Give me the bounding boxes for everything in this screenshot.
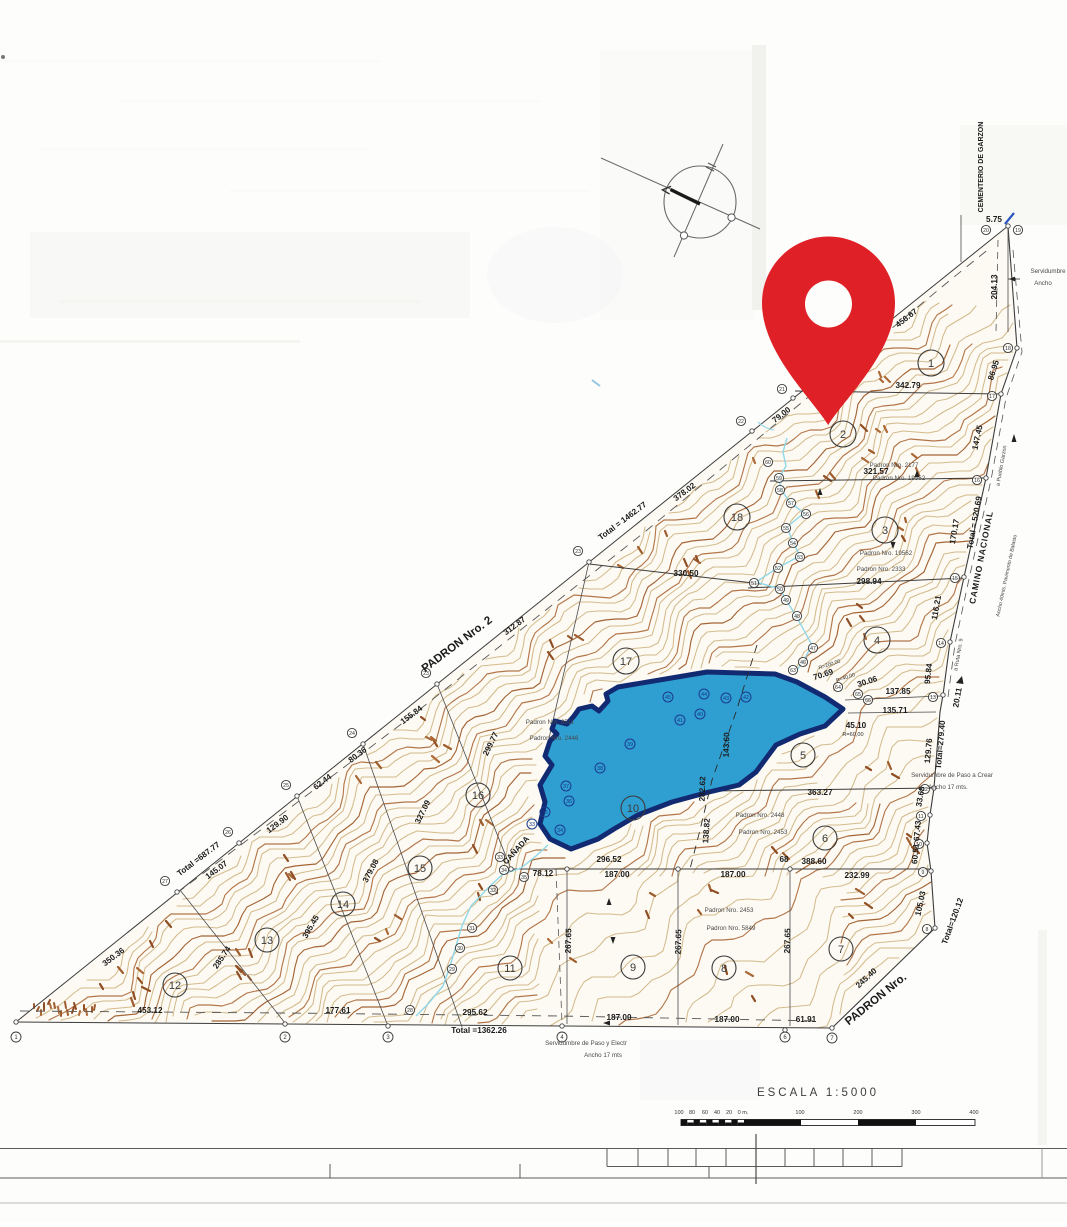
- svg-text:Servidumbre de Paso a Crear: Servidumbre de Paso a Crear: [911, 772, 993, 779]
- svg-text:100: 100: [795, 1110, 804, 1116]
- svg-text:Padron Nro. 2453: Padron Nro. 2453: [705, 907, 754, 914]
- svg-text:Padron Nro. 2453: Padron Nro. 2453: [739, 829, 788, 836]
- svg-text:16: 16: [472, 790, 484, 802]
- svg-text:33: 33: [529, 822, 535, 828]
- svg-text:31: 31: [469, 926, 475, 932]
- svg-text:282.62: 282.62: [698, 776, 708, 802]
- svg-text:298.94: 298.94: [856, 577, 881, 586]
- svg-text:ESCALA 1:5000: ESCALA 1:5000: [757, 1087, 879, 1099]
- svg-text:330.50: 330.50: [673, 569, 698, 578]
- svg-text:60: 60: [765, 460, 771, 466]
- svg-text:65: 65: [855, 692, 861, 698]
- svg-text:40: 40: [697, 712, 703, 718]
- svg-text:18: 18: [1005, 346, 1011, 352]
- svg-text:267.65: 267.65: [674, 929, 684, 955]
- svg-text:177.61: 177.61: [325, 1006, 350, 1015]
- svg-text:28: 28: [407, 1008, 413, 1014]
- svg-text:Padron Nro. 2333: Padron Nro. 2333: [857, 566, 906, 573]
- svg-text:35: 35: [521, 875, 527, 881]
- svg-text:52: 52: [775, 566, 781, 572]
- svg-text:Padron Nro. 2448: Padron Nro. 2448: [736, 812, 785, 819]
- svg-text:400: 400: [969, 1110, 978, 1116]
- svg-text:41: 41: [677, 718, 683, 724]
- svg-text:25: 25: [283, 783, 289, 789]
- svg-text:27: 27: [162, 879, 168, 885]
- svg-text:200: 200: [853, 1110, 862, 1116]
- svg-text:37: 37: [563, 784, 569, 790]
- svg-text:34: 34: [501, 868, 507, 874]
- svg-text:300: 300: [911, 1110, 920, 1116]
- svg-text:59: 59: [776, 476, 782, 482]
- svg-text:10: 10: [627, 803, 639, 815]
- svg-text:49: 49: [783, 598, 789, 604]
- svg-text:42: 42: [743, 695, 749, 701]
- svg-text:232.99: 232.99: [844, 871, 869, 880]
- svg-text:453.12: 453.12: [137, 1006, 162, 1015]
- svg-text:7: 7: [838, 944, 844, 956]
- svg-text:17: 17: [620, 656, 632, 668]
- svg-text:30: 30: [457, 946, 463, 952]
- svg-text:40: 40: [714, 1110, 720, 1116]
- svg-text:61.91: 61.91: [796, 1015, 817, 1024]
- svg-text:187.00: 187.00: [604, 870, 629, 879]
- svg-text:Ancho: Ancho: [1034, 280, 1052, 287]
- svg-text:32: 32: [490, 888, 496, 894]
- svg-text:Padron Nro. 8511: Padron Nro. 8511: [526, 719, 575, 726]
- svg-text:187.00: 187.00: [714, 1015, 739, 1024]
- svg-text:45.10: 45.10: [846, 721, 867, 730]
- svg-text:21: 21: [779, 387, 785, 393]
- svg-text:16: 16: [974, 478, 980, 484]
- svg-text:60: 60: [702, 1110, 708, 1116]
- svg-text:CEMENTERIO DE GARZON: CEMENTERIO DE GARZON: [978, 122, 985, 213]
- svg-text:20: 20: [726, 1110, 732, 1116]
- svg-text:29: 29: [449, 967, 455, 973]
- svg-text:46: 46: [800, 660, 806, 666]
- svg-text:19: 19: [1015, 228, 1021, 234]
- svg-text:8: 8: [926, 927, 929, 933]
- svg-text:296.52: 296.52: [596, 855, 621, 864]
- svg-text:187.00: 187.00: [720, 870, 745, 879]
- svg-text:6: 6: [822, 833, 828, 845]
- svg-text:58: 58: [777, 488, 783, 494]
- svg-text:26: 26: [225, 830, 231, 836]
- svg-text:11: 11: [504, 963, 515, 975]
- svg-text:295.62: 295.62: [462, 1008, 487, 1017]
- svg-text:Ancho 17 mts: Ancho 17 mts: [584, 1052, 622, 1059]
- svg-text:13: 13: [930, 695, 936, 701]
- svg-text:5.75: 5.75: [986, 215, 1002, 224]
- svg-text:20: 20: [983, 228, 989, 234]
- svg-text:388.60: 388.60: [801, 857, 826, 866]
- svg-text:53: 53: [797, 555, 803, 561]
- svg-text:80: 80: [689, 1110, 695, 1116]
- svg-text:4: 4: [874, 635, 880, 647]
- svg-text:143.60: 143.60: [722, 732, 732, 758]
- svg-text:23: 23: [575, 549, 581, 555]
- svg-text:187.00: 187.00: [606, 1013, 631, 1022]
- svg-text:14: 14: [337, 899, 349, 911]
- svg-text:24: 24: [349, 731, 355, 737]
- svg-text:8: 8: [721, 963, 727, 975]
- svg-text:63: 63: [790, 668, 796, 674]
- svg-text:204.13: 204.13: [990, 274, 999, 299]
- svg-text:9: 9: [922, 870, 925, 876]
- svg-text:11: 11: [918, 814, 923, 820]
- svg-text:9: 9: [630, 962, 636, 974]
- svg-text:60.51: 60.51: [910, 843, 921, 865]
- svg-text:43: 43: [723, 696, 729, 702]
- svg-text:Padron Nro. 19562: Padron Nro. 19562: [860, 550, 913, 557]
- svg-text:39: 39: [627, 742, 633, 748]
- svg-text:12: 12: [169, 980, 181, 992]
- svg-text:267.65: 267.65: [783, 928, 793, 954]
- svg-text:36: 36: [566, 799, 572, 805]
- svg-text:Padron Nro. 2446: Padron Nro. 2446: [530, 735, 579, 742]
- svg-text:15: 15: [952, 576, 958, 582]
- svg-text:14: 14: [938, 641, 944, 647]
- svg-text:R=60,00: R=60,00: [842, 732, 863, 738]
- svg-text:100: 100: [674, 1110, 683, 1116]
- svg-text:68: 68: [779, 855, 789, 864]
- svg-text:78.12: 78.12: [533, 869, 554, 878]
- svg-text:64: 64: [835, 685, 841, 691]
- svg-text:3: 3: [882, 525, 888, 537]
- svg-text:1: 1: [928, 358, 934, 370]
- svg-text:44: 44: [701, 692, 707, 698]
- svg-text:17: 17: [989, 394, 995, 400]
- svg-text:0 m.: 0 m.: [738, 1110, 749, 1116]
- svg-text:138.82: 138.82: [701, 818, 712, 844]
- svg-text:22: 22: [738, 419, 744, 425]
- svg-text:57: 57: [788, 501, 794, 507]
- svg-text:35: 35: [542, 810, 548, 816]
- svg-text:15: 15: [414, 863, 426, 875]
- svg-text:38: 38: [597, 766, 603, 772]
- svg-text:47: 47: [810, 646, 816, 652]
- svg-text:Padron Nro. 2177: Padron Nro. 2177: [870, 462, 919, 469]
- svg-text:66: 66: [865, 698, 871, 704]
- svg-text:363.27: 363.27: [807, 788, 832, 797]
- svg-text:34: 34: [557, 828, 563, 834]
- svg-text:5: 5: [800, 750, 806, 762]
- svg-text:45: 45: [665, 695, 671, 701]
- svg-text:Servidumbre de Paso y Electr: Servidumbre de Paso y Electr: [545, 1040, 627, 1047]
- svg-text:50: 50: [777, 587, 783, 593]
- svg-text:135.71: 135.71: [882, 706, 907, 715]
- svg-text:55: 55: [783, 526, 789, 532]
- svg-text:342.79: 342.79: [895, 381, 920, 390]
- svg-text:137.85: 137.85: [885, 687, 910, 696]
- svg-text:2: 2: [840, 429, 846, 441]
- svg-text:267.65: 267.65: [564, 928, 574, 954]
- svg-text:Servidumbre: Servidumbre: [1030, 268, 1066, 275]
- svg-text:48: 48: [794, 614, 800, 620]
- svg-text:18: 18: [731, 512, 743, 524]
- svg-text:Ancho 17 mts.: Ancho 17 mts.: [928, 784, 968, 791]
- svg-text:67.43: 67.43: [912, 820, 923, 842]
- svg-text:54: 54: [790, 541, 796, 547]
- svg-text:Padron Nro. 5849: Padron Nro. 5849: [707, 925, 756, 932]
- svg-text:56: 56: [803, 512, 809, 518]
- svg-text:Total =1362.26: Total =1362.26: [451, 1026, 507, 1035]
- svg-text:51: 51: [751, 581, 757, 587]
- svg-text:13: 13: [261, 935, 273, 947]
